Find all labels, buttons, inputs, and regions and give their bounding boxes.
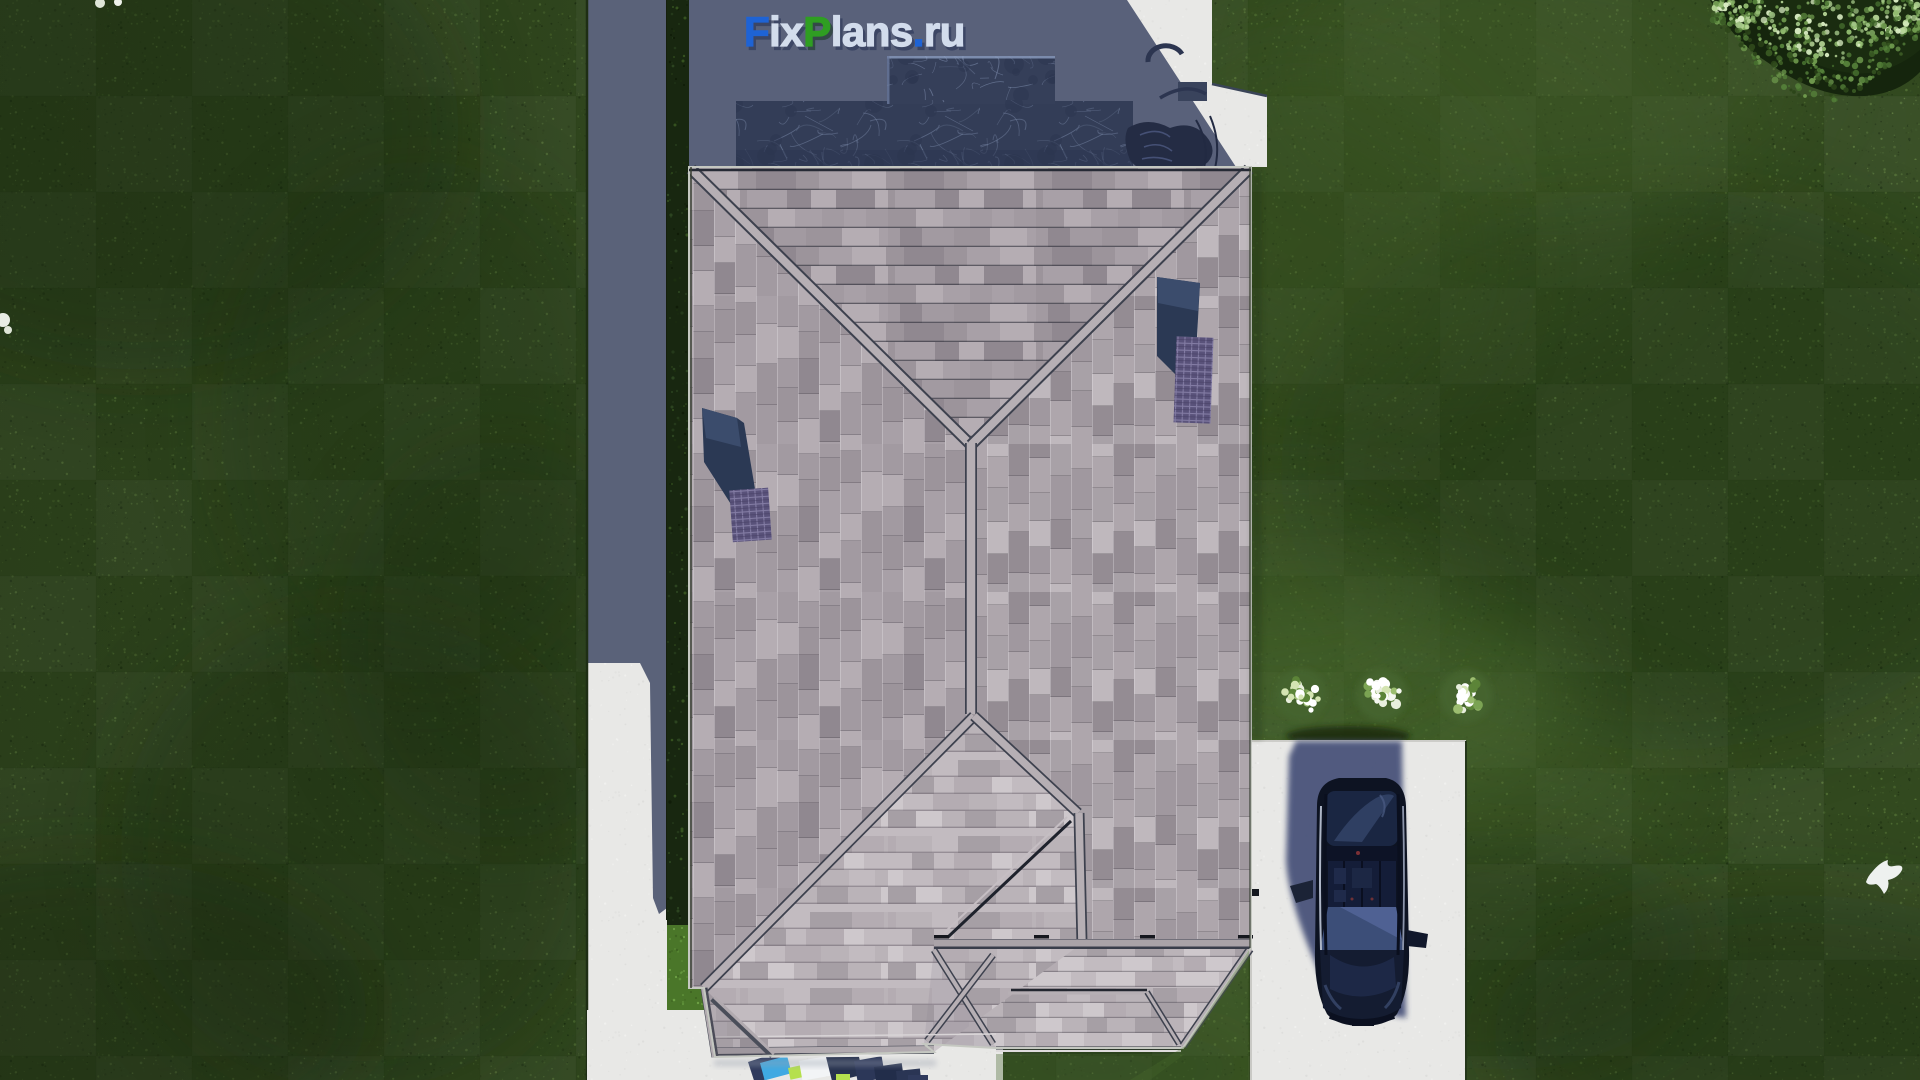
svg-text:FixPlans.ru: FixPlans.ru xyxy=(744,8,965,55)
